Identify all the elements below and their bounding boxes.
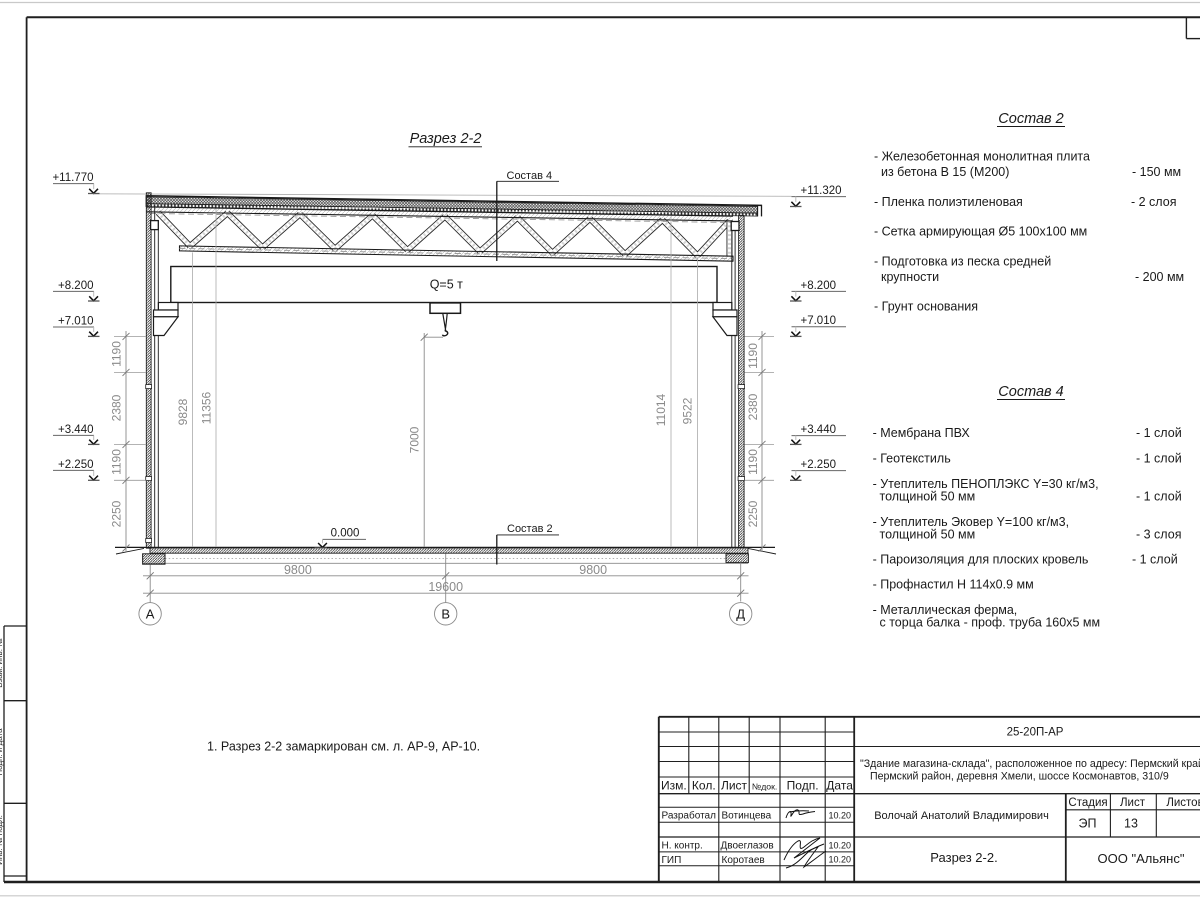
svg-text:7000: 7000 <box>408 426 422 453</box>
svg-text:1. Разрез 2-2 замаркирован см.: 1. Разрез 2-2 замаркирован см. л. АР-9, … <box>207 740 480 754</box>
svg-text:+3.440: +3.440 <box>801 424 837 436</box>
svg-text:9800: 9800 <box>284 563 312 577</box>
svg-text:+7.010: +7.010 <box>801 315 837 327</box>
svg-text:Кол.: Кол. <box>692 779 716 793</box>
svg-text:2380: 2380 <box>110 394 124 421</box>
svg-text:+2.250: +2.250 <box>801 459 837 471</box>
svg-text:25-20П-АР: 25-20П-АР <box>1007 727 1064 739</box>
svg-text:из бетона В 15 (М200): из бетона В 15 (М200) <box>881 165 1009 179</box>
svg-text:- Металлическая ферма,: - Металлическая ферма, <box>873 603 1018 617</box>
svg-text:Д: Д <box>736 607 745 622</box>
svg-text:Состав 2: Состав 2 <box>998 111 1063 127</box>
svg-text:10.20: 10.20 <box>829 841 852 851</box>
svg-text:Коротаев: Коротаев <box>722 855 765 866</box>
svg-text:- 3 слоя: - 3 слоя <box>1136 527 1181 541</box>
svg-text:- Мембрана ПВХ: - Мембрана ПВХ <box>873 426 971 440</box>
svg-text:+8.200: +8.200 <box>58 280 94 292</box>
svg-text:+8.200: +8.200 <box>801 280 837 292</box>
svg-text:ЭП: ЭП <box>1079 817 1097 831</box>
svg-text:- 200 мм: - 200 мм <box>1135 270 1184 284</box>
svg-text:ООО "Альянс": ООО "Альянс" <box>1098 851 1185 866</box>
svg-text:толщиной 50 мм: толщиной 50 мм <box>880 527 976 541</box>
svg-text:Состав 4: Состав 4 <box>507 170 553 182</box>
svg-text:"Здание магазина-склада", расп: "Здание магазина-склада", расположенное … <box>860 758 1200 770</box>
svg-text:Q=5 т: Q=5 т <box>430 277 463 291</box>
svg-text:Стадия: Стадия <box>1068 797 1107 809</box>
svg-text:19600: 19600 <box>428 580 463 594</box>
svg-text:- Грунт основания: - Грунт основания <box>874 300 978 314</box>
svg-text:Лист: Лист <box>721 779 748 793</box>
svg-text:№док.: №док. <box>752 781 777 791</box>
svg-text:- Подготовка из песка средней: - Подготовка из песка средней <box>874 254 1051 268</box>
svg-text:1190: 1190 <box>746 449 760 475</box>
svg-text:- Сетка армирующая Ø5 100x100: - Сетка армирующая Ø5 100x100 мм <box>874 225 1087 239</box>
svg-text:толщиной 50 мм: толщиной 50 мм <box>880 489 976 503</box>
svg-text:9828: 9828 <box>176 398 190 425</box>
svg-text:+3.440: +3.440 <box>58 424 94 436</box>
svg-text:- 1 слой: - 1 слой <box>1136 426 1182 440</box>
svg-text:9522: 9522 <box>681 397 695 424</box>
svg-text:Лист: Лист <box>1120 797 1146 809</box>
svg-text:+11.320: +11.320 <box>801 185 842 197</box>
svg-text:- Железобетонная монолитная п: - Железобетонная монолитная плита <box>874 149 1090 163</box>
svg-text:- 1 слой: - 1 слой <box>1136 451 1182 465</box>
svg-text:Листов: Листов <box>1166 797 1200 809</box>
svg-text:- 2 слоя: - 2 слоя <box>1131 195 1176 209</box>
svg-text:- Пленка полиэтиленовая: - Пленка полиэтиленовая <box>874 195 1023 209</box>
svg-text:2250: 2250 <box>746 500 760 527</box>
svg-text:крупности: крупности <box>881 270 939 284</box>
svg-text:- 1 слой: - 1 слой <box>1132 552 1178 566</box>
svg-text:Двоеглазов: Двоеглазов <box>721 841 774 852</box>
svg-text:+11.770: +11.770 <box>52 172 93 184</box>
svg-text:- Геотекстиль: - Геотекстиль <box>873 451 951 465</box>
svg-text:1190: 1190 <box>746 343 760 369</box>
svg-text:- 1 слой: - 1 слой <box>1136 489 1182 503</box>
svg-text:Пермский район, деревня Хмели,: Пермский район, деревня Хмели, шоссе Кос… <box>870 770 1169 782</box>
svg-text:Разрез 2-2: Разрез 2-2 <box>410 131 482 147</box>
svg-text:1190: 1190 <box>110 449 124 475</box>
svg-text:Инв. № подл.: Инв. № подл. <box>0 815 4 865</box>
svg-text:- 150 мм: - 150 мм <box>1132 165 1181 179</box>
svg-text:9800: 9800 <box>579 563 607 577</box>
svg-text:2250: 2250 <box>110 500 124 527</box>
svg-text:+7.010: +7.010 <box>58 315 94 327</box>
svg-text:11014: 11014 <box>654 393 668 426</box>
svg-text:Вотинцева: Вотинцева <box>722 811 772 822</box>
svg-text:Разрез 2-2.: Разрез 2-2. <box>930 850 997 865</box>
svg-text:Н. контр.: Н. контр. <box>662 841 703 852</box>
svg-text:13: 13 <box>1124 817 1138 831</box>
svg-text:В: В <box>441 607 450 622</box>
svg-text:+2.250: +2.250 <box>58 459 94 471</box>
svg-text:Подп.: Подп. <box>787 779 819 793</box>
svg-text:10.20: 10.20 <box>829 810 852 820</box>
svg-text:Подп. и дата: Подп. и дата <box>0 728 4 776</box>
svg-text:Волочай Анатолий Владимирович: Волочай Анатолий Владимирович <box>874 810 1049 822</box>
svg-text:- Пароизоляция для плоских кро: - Пароизоляция для плоских кровель <box>873 552 1089 566</box>
svg-text:0.000: 0.000 <box>331 528 360 540</box>
svg-text:А: А <box>146 607 155 622</box>
svg-text:ГИП: ГИП <box>662 855 682 866</box>
svg-text:Состав 2: Состав 2 <box>507 523 553 535</box>
svg-text:Изм.: Изм. <box>661 779 687 793</box>
svg-text:Разработал: Разработал <box>662 810 717 822</box>
svg-text:11356: 11356 <box>200 391 214 424</box>
svg-text:Взам. инв. №: Взам. инв. № <box>0 638 4 688</box>
svg-text:- Профнастил Н 114x0.9 мм: - Профнастил Н 114x0.9 мм <box>873 577 1034 591</box>
svg-text:Состав 4: Состав 4 <box>998 384 1063 400</box>
svg-text:с торца балка - проф. труба 16: с торца балка - проф. труба 160x5 мм <box>880 616 1101 630</box>
svg-text:1190: 1190 <box>110 341 124 367</box>
svg-text:2380: 2380 <box>746 393 760 420</box>
svg-text:10.20: 10.20 <box>829 855 852 865</box>
svg-text:Дата: Дата <box>826 779 853 793</box>
